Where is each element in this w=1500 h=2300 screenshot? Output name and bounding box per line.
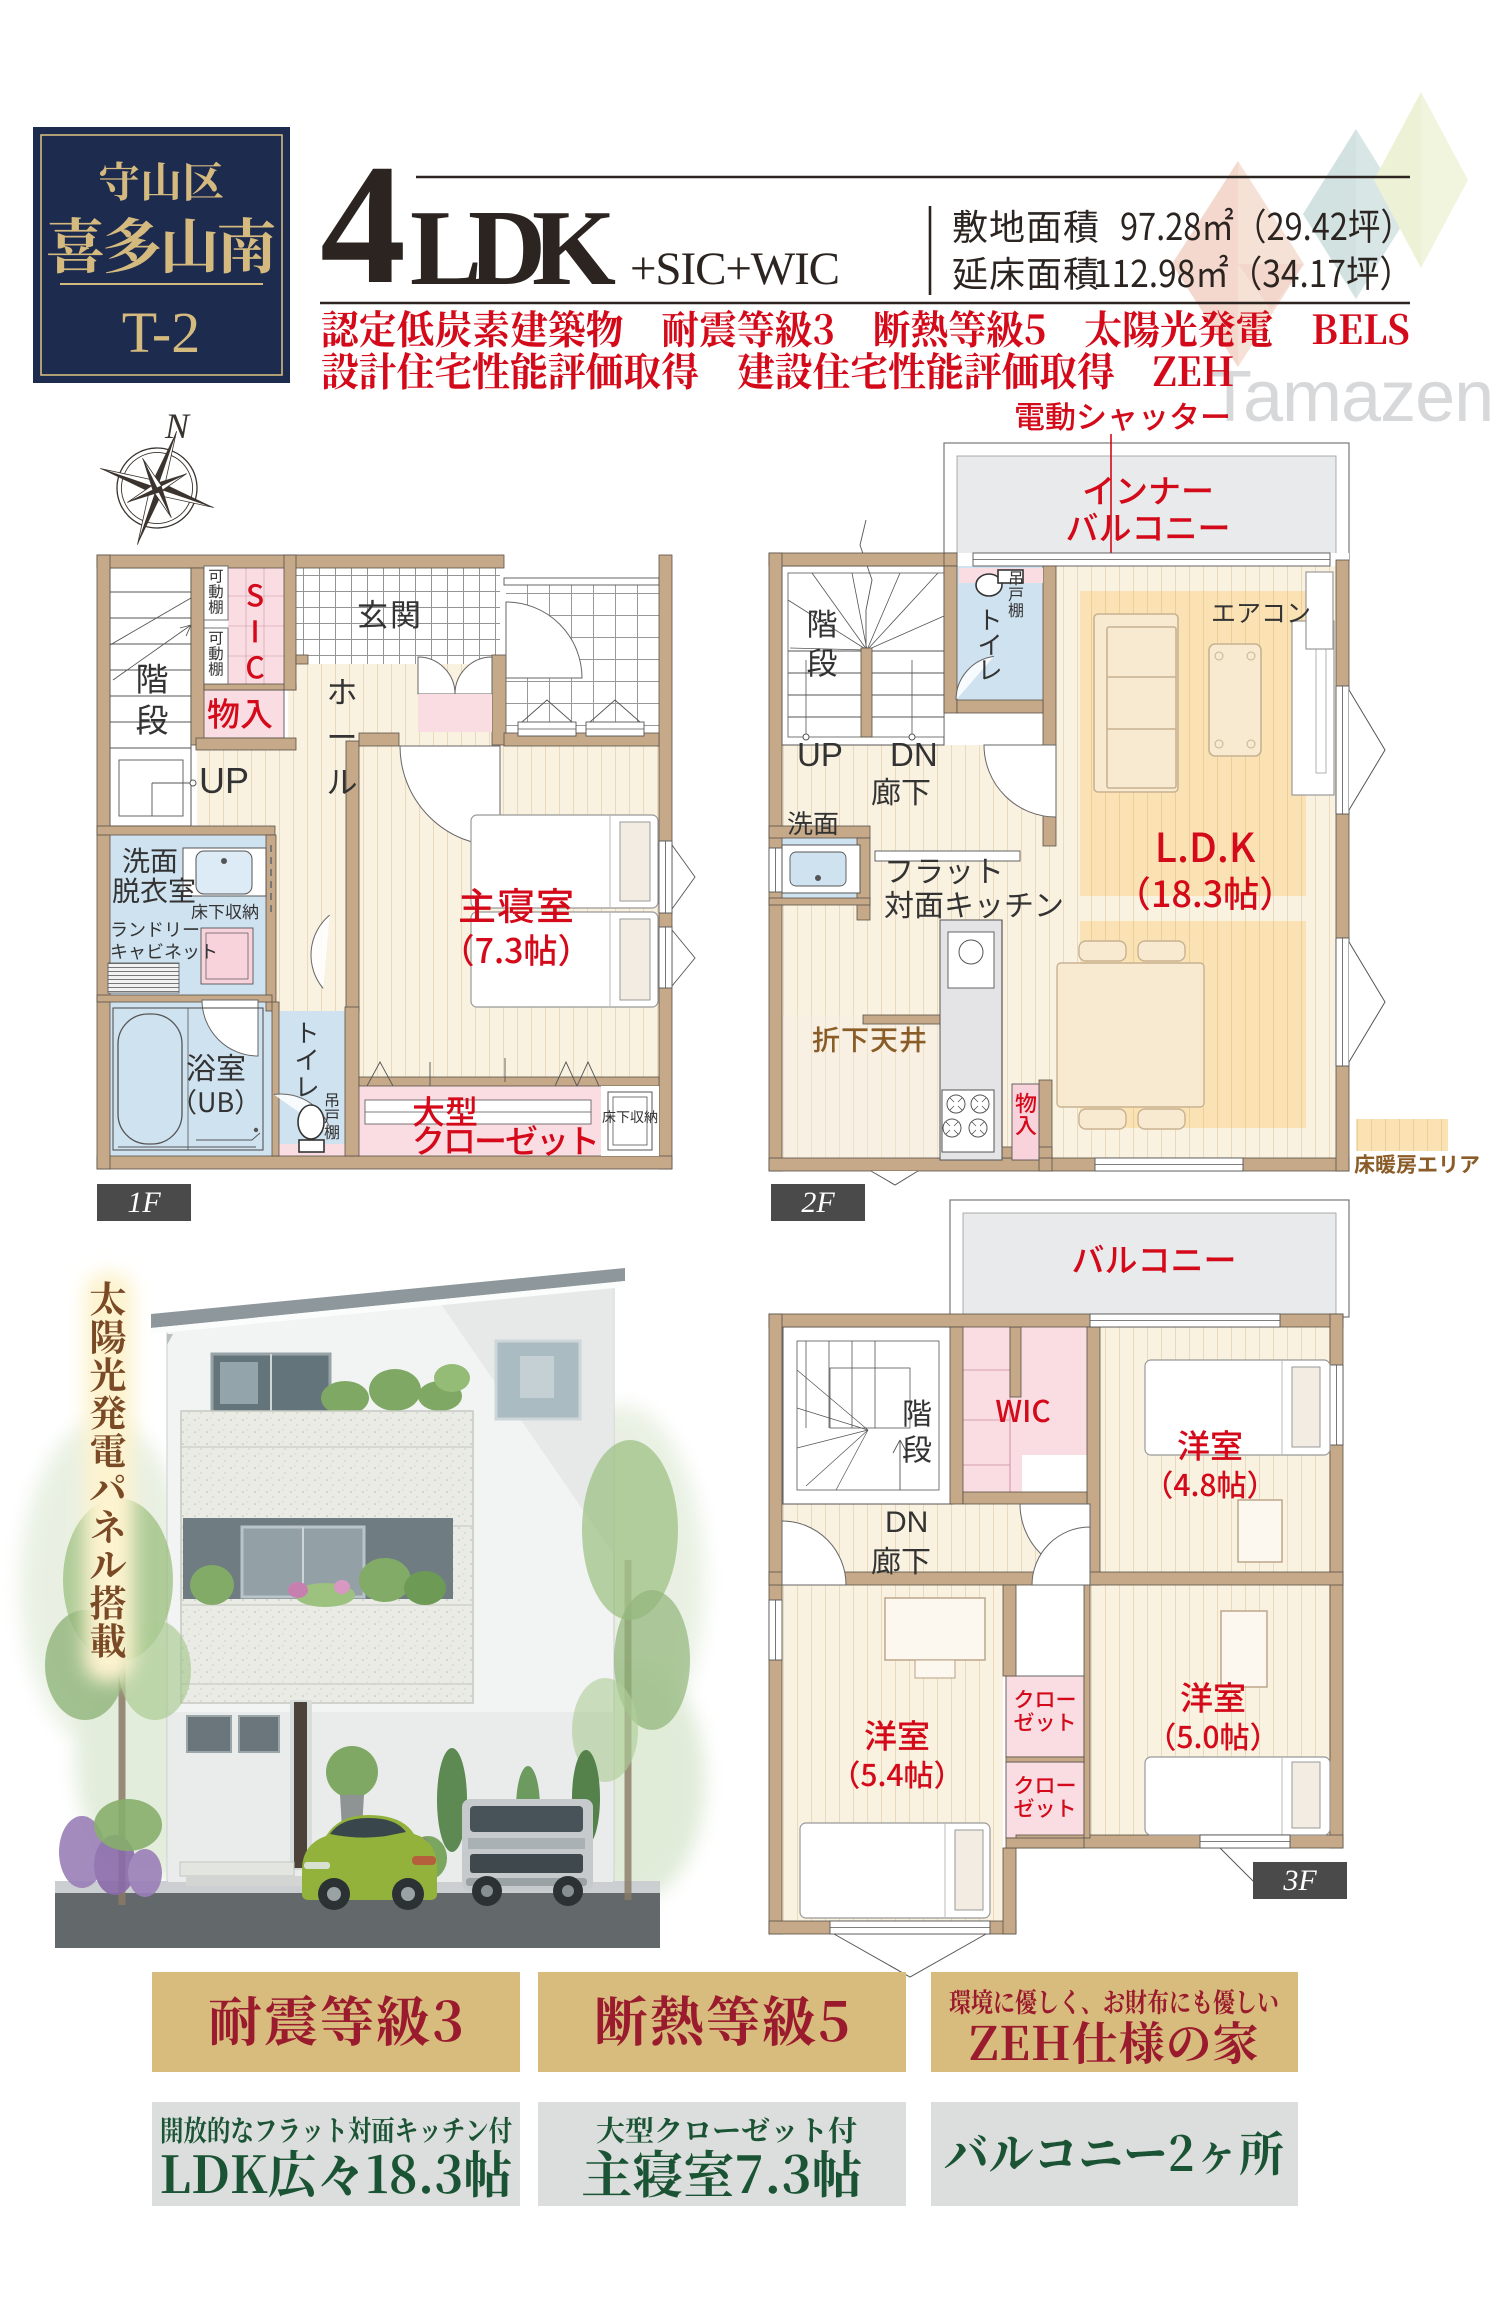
svg-text:UP: UP xyxy=(797,736,843,773)
svg-text:UP: UP xyxy=(199,760,249,801)
svg-text:DN: DN xyxy=(885,1506,928,1539)
svg-text:T-2: T-2 xyxy=(122,300,200,365)
svg-text:DN: DN xyxy=(890,736,938,773)
svg-text:3F: 3F xyxy=(1282,1864,1317,1897)
svg-text:LDK: LDK xyxy=(410,189,616,308)
svg-text:+SIC+WIC: +SIC+WIC xyxy=(630,243,840,295)
svg-text:N: N xyxy=(164,406,191,446)
svg-text:Tamazen: Tamazen xyxy=(1208,357,1493,437)
svg-text:4: 4 xyxy=(320,130,406,320)
svg-text:1F: 1F xyxy=(127,1186,161,1219)
svg-text:2F: 2F xyxy=(801,1186,835,1219)
